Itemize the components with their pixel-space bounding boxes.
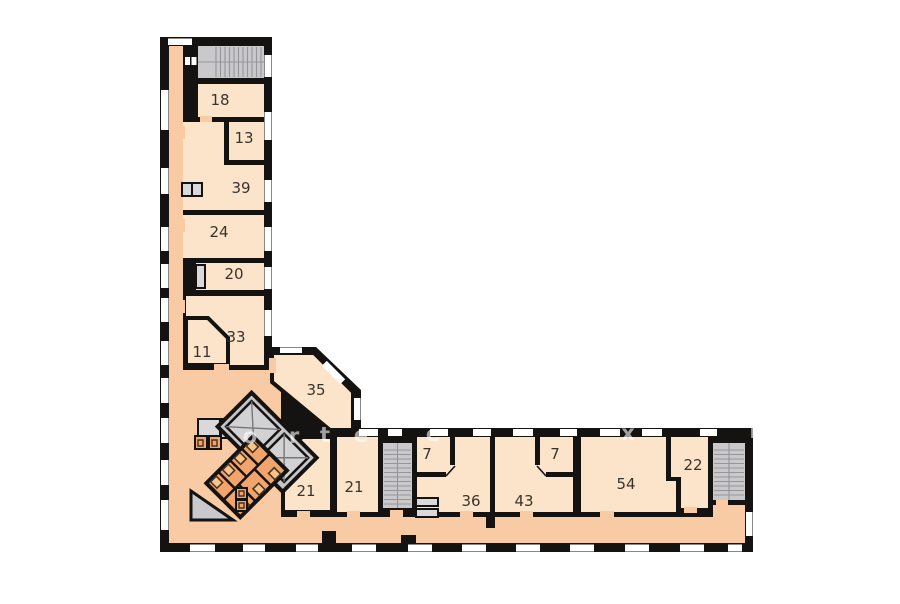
- floor-plan: 18 13 39 24 20 33 11 35 21 21 7 36 7 43 …: [0, 0, 900, 604]
- room-label-21b: 21: [344, 478, 363, 496]
- room-label-20: 20: [224, 265, 243, 283]
- watermark-letter: e: [426, 422, 440, 446]
- room-label-39: 39: [231, 179, 250, 197]
- rooms-bottom-wing: [283, 437, 708, 512]
- room-label-43: 43: [514, 492, 533, 510]
- room-label-7b: 7: [550, 445, 560, 463]
- room-label-7a: 7: [422, 445, 432, 463]
- washbasin-2: [209, 436, 221, 449]
- room-label-54: 54: [616, 475, 635, 493]
- room-label-22: 22: [683, 456, 702, 474]
- watermark-letter: r: [289, 424, 300, 448]
- stair-vestibule-box-2: [416, 509, 438, 517]
- top-wall-window: [168, 39, 192, 46]
- floor-plan-page: 18 13 39 24 20 33 11 35 21 21 7 36 7 43 …: [0, 0, 900, 604]
- washbasin-3: [236, 488, 247, 499]
- room-label-18: 18: [210, 91, 229, 109]
- duct-box-3: [196, 265, 205, 288]
- room-label-21a: 21: [296, 482, 315, 500]
- room-label-33: 33: [226, 328, 245, 346]
- watermark-letter: t: [320, 423, 330, 447]
- right-wall-window: [746, 512, 753, 536]
- room-label-13: 13: [234, 129, 253, 147]
- room-label-24: 24: [209, 223, 228, 241]
- watermark-letter: o: [243, 424, 257, 448]
- room-21b: [337, 437, 378, 512]
- stairwell-top: [198, 46, 264, 78]
- washbasin-4: [236, 500, 247, 511]
- stairwell-right: [713, 443, 745, 500]
- room-18: [198, 84, 264, 117]
- watermark-letter: x: [621, 421, 635, 445]
- watermark-letter: e: [354, 423, 368, 447]
- washbasin-1: [195, 436, 207, 449]
- stair-vestibule-box-1: [416, 498, 438, 506]
- duct-box-2: [192, 183, 202, 196]
- watermark-letter: D: [749, 419, 766, 443]
- corridor-right-pocket: [713, 505, 745, 543]
- room-label-35: 35: [306, 381, 325, 399]
- duct-box-1: [182, 183, 192, 196]
- room-label-36: 36: [461, 492, 480, 510]
- corridor-left-strip: [169, 46, 183, 370]
- corridor-bottom-band: [169, 517, 745, 543]
- room-label-11: 11: [192, 343, 211, 361]
